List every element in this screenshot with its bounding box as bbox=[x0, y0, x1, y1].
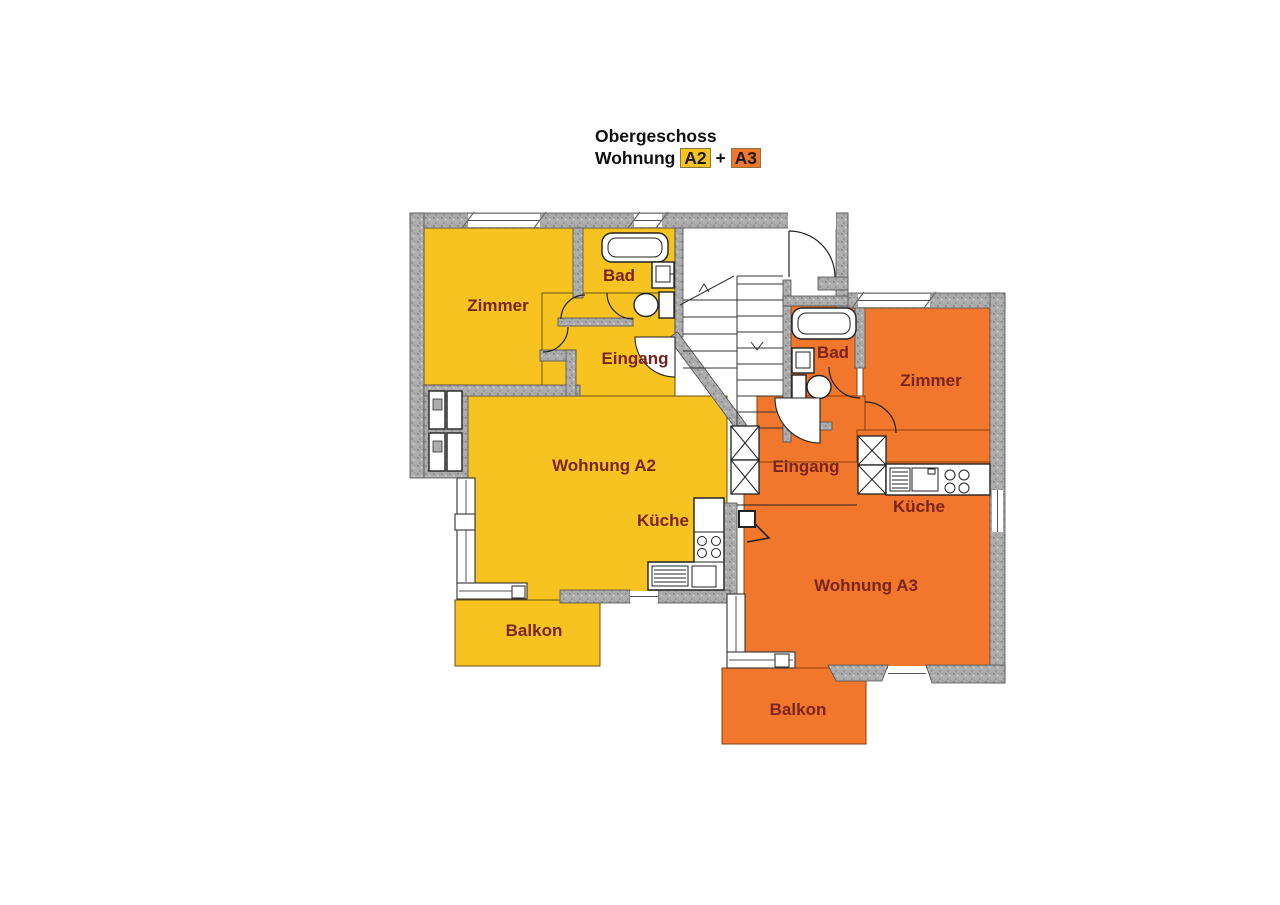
floor-plan-svg: Zimmer Bad Eingang Wohnung A2 Küche Balk… bbox=[0, 0, 1280, 905]
wall-bad-a3-north bbox=[783, 296, 857, 306]
label-a2-zimmer: Zimmer bbox=[467, 296, 529, 315]
shaft-a2-diagonal bbox=[731, 426, 759, 494]
floor-plan-page: Obergeschoss Wohnung A2 + A3 bbox=[0, 0, 1280, 905]
stair-up-arrow bbox=[699, 284, 709, 292]
label-a3-bad: Bad bbox=[817, 343, 849, 362]
toilet-a3 bbox=[792, 375, 831, 400]
label-a3-living: Wohnung A3 bbox=[814, 576, 918, 595]
wall-left bbox=[410, 213, 424, 478]
wall-door-recess-stub bbox=[818, 277, 848, 290]
window-a2-south bbox=[630, 591, 658, 602]
wall-a2-south-2 bbox=[658, 590, 730, 603]
glass-a2-south bbox=[457, 583, 527, 599]
window-a3-top bbox=[852, 292, 936, 308]
wall-zimmer-bad-a2 bbox=[573, 228, 583, 298]
shaft-a3-kitchen bbox=[858, 436, 886, 494]
window-a3-south bbox=[888, 666, 926, 681]
bathtub-a3 bbox=[792, 308, 856, 339]
sink-a3 bbox=[792, 348, 814, 373]
label-a2-living: Wohnung A2 bbox=[552, 456, 656, 475]
wall-a3-south-1 bbox=[828, 665, 888, 681]
label-a2-eingang: Eingang bbox=[601, 349, 668, 368]
wall-ne-connector bbox=[836, 213, 848, 308]
label-a3-zimmer: Zimmer bbox=[900, 371, 962, 390]
sink-a2 bbox=[652, 262, 674, 288]
stair-down-arrow bbox=[751, 342, 763, 350]
glass-a3-west bbox=[727, 594, 745, 656]
stairwell-top-door bbox=[789, 231, 835, 277]
label-a2-balkon: Balkon bbox=[506, 621, 563, 640]
wall-bad-zimmer-a3 bbox=[855, 306, 865, 368]
bathtub-a2 bbox=[602, 233, 668, 262]
label-a2-bad: Bad bbox=[603, 266, 635, 285]
wall-a3-right bbox=[990, 293, 1005, 683]
wall-a3-south-2 bbox=[926, 665, 1005, 683]
glass-a2-west bbox=[455, 478, 475, 584]
label-a3-kueche: Küche bbox=[893, 497, 945, 516]
window-zimmer-a2 bbox=[462, 212, 546, 228]
window-a3-right bbox=[992, 490, 1003, 532]
label-a3-eingang: Eingang bbox=[772, 457, 839, 476]
wall-stairwell-west bbox=[675, 228, 683, 337]
wall-bad-a2-south bbox=[558, 318, 633, 326]
toilet-a2 bbox=[634, 292, 674, 318]
label-a2-kueche: Küche bbox=[637, 511, 689, 530]
window-bad-a2 bbox=[628, 212, 668, 228]
stair-door-opening bbox=[788, 212, 836, 229]
stair-break-line bbox=[680, 276, 734, 305]
glass-a3-south bbox=[727, 652, 795, 668]
label-a3-balkon: Balkon bbox=[770, 700, 827, 719]
wall-nook-a2-v bbox=[566, 350, 576, 396]
wall-a2-south-1 bbox=[560, 590, 630, 603]
